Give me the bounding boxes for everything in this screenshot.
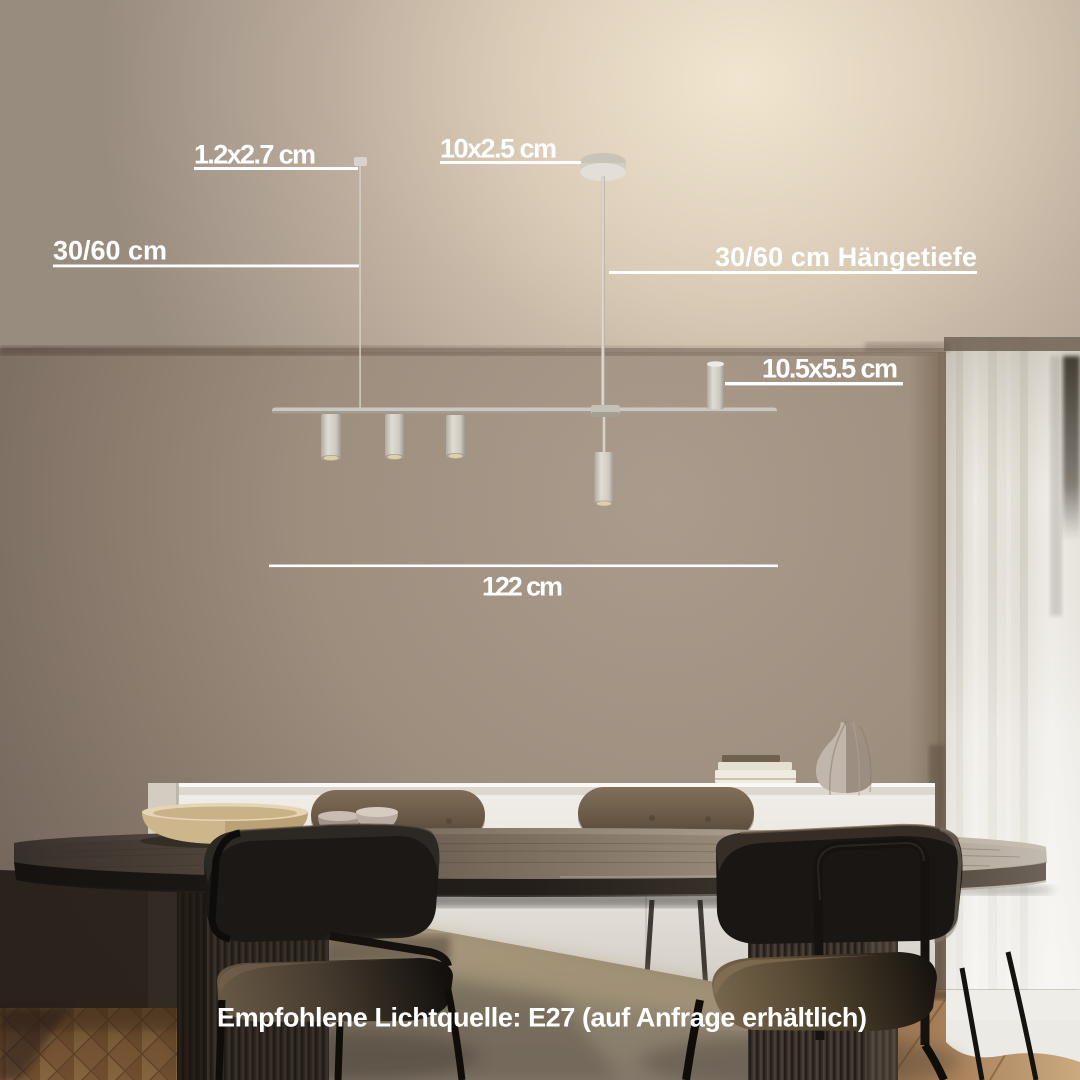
svg-text:30/60 cm Hängetiefe: 30/60 cm Hängetiefe [715,242,977,272]
svg-text:1.2x2.7 cm: 1.2x2.7 cm [194,140,316,170]
svg-text:30/60 cm: 30/60 cm [53,236,167,266]
svg-text:122 cm: 122 cm [482,572,563,602]
svg-text:10x2.5 cm: 10x2.5 cm [440,134,557,164]
svg-text:Empfohlene Lichtquelle: E27 (a: Empfohlene Lichtquelle: E27 (auf Anfrage… [217,1003,867,1033]
svg-text:10.5x5.5 cm: 10.5x5.5 cm [762,354,898,384]
